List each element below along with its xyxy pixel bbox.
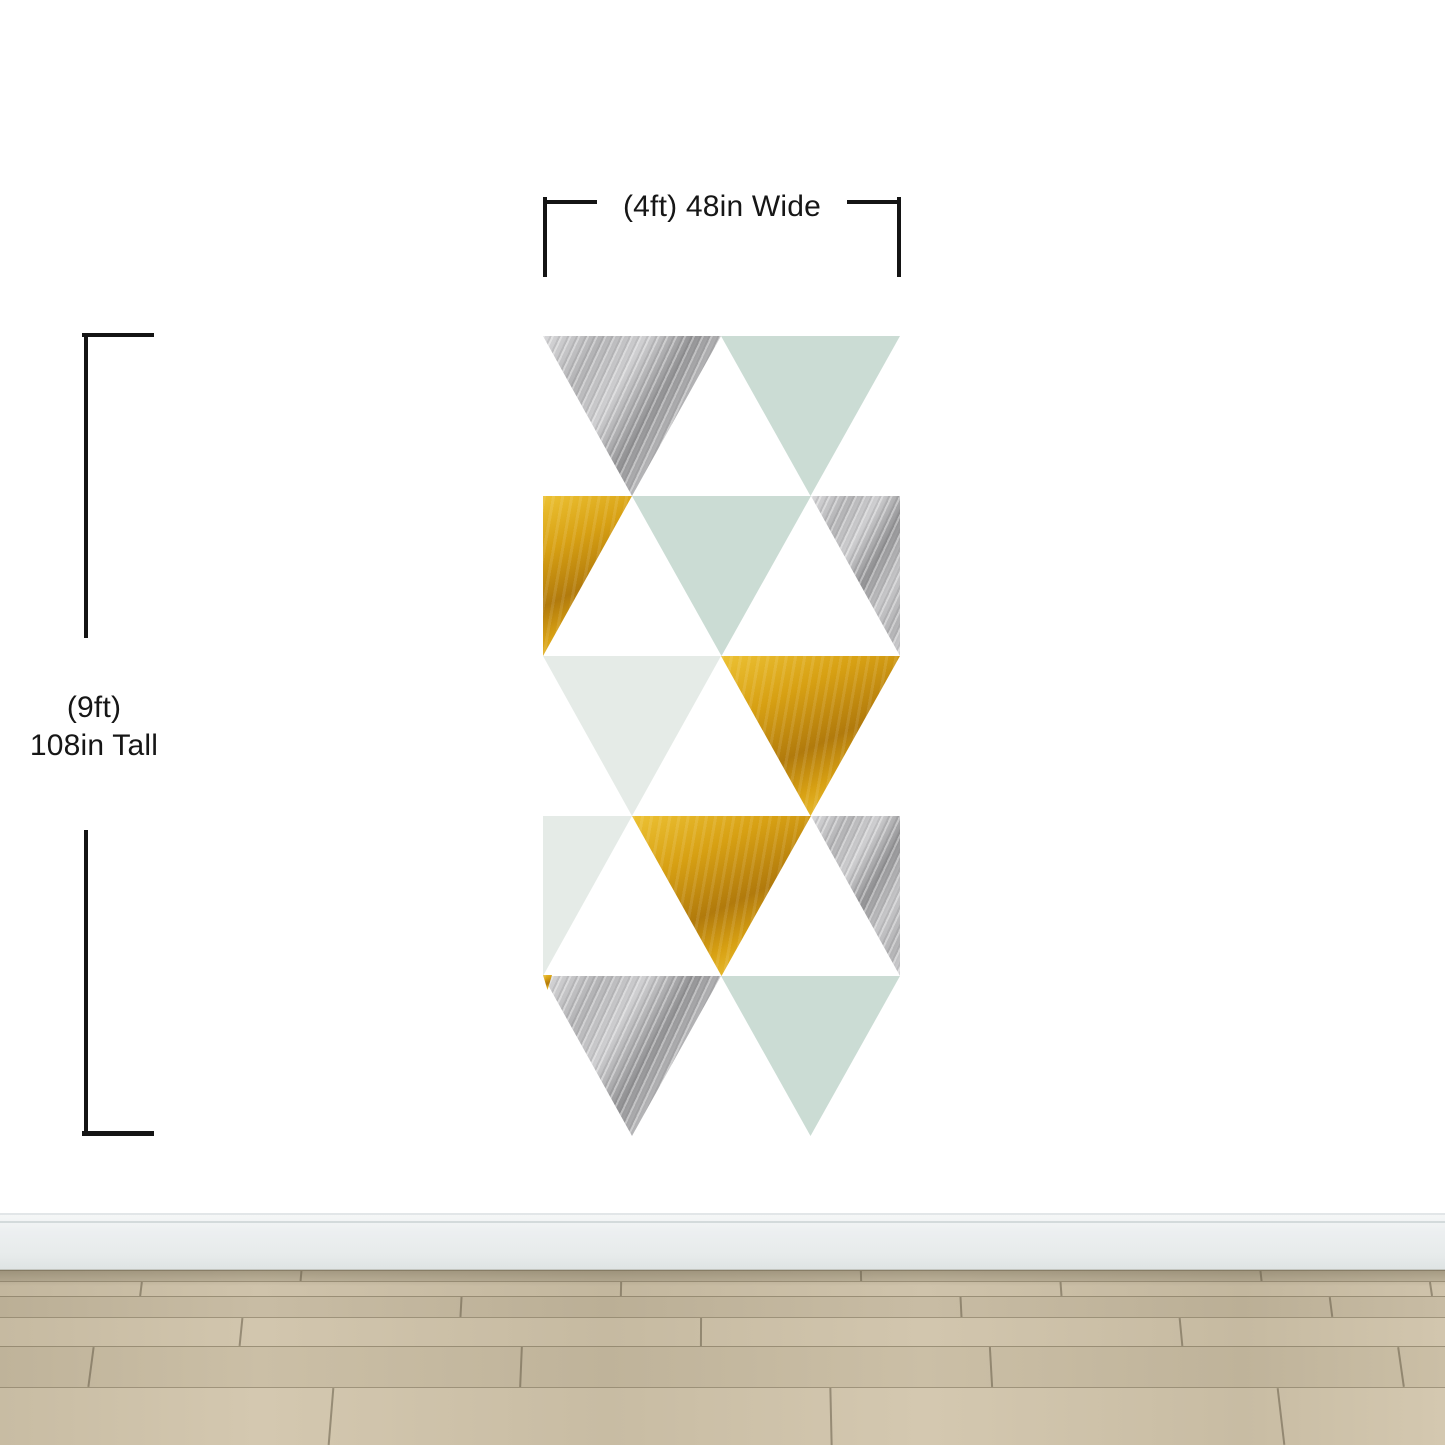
mural-triangle-gold — [632, 816, 811, 976]
height-bracket-lower-line — [84, 830, 88, 1135]
height-bracket-bottom-tick — [82, 1131, 154, 1136]
plank-joint — [1329, 1297, 1334, 1317]
mural-triangle-gold — [721, 656, 900, 816]
width-dimension-label: (4ft) 48in Wide — [543, 188, 901, 226]
triangle-wall-mural — [543, 336, 900, 1136]
height-bracket-upper-line — [84, 334, 88, 638]
floor-plank-row — [0, 1317, 1445, 1346]
floor-plank-row — [0, 1281, 1445, 1296]
baseboard — [0, 1213, 1445, 1272]
plank-joint — [989, 1347, 993, 1387]
mural-triangle-mint — [632, 496, 811, 656]
plank-joint — [700, 1318, 702, 1346]
room-scene: (4ft) 48in Wide (9ft) 108in Tall — [0, 0, 1445, 1445]
mural-triangle-silver — [811, 496, 900, 656]
plank-joint — [1277, 1388, 1286, 1445]
floor-plank-row — [0, 1270, 1445, 1281]
plank-joint — [1259, 1271, 1262, 1281]
height-label-inches: 108in Tall — [0, 727, 219, 765]
plank-joint — [239, 1318, 244, 1346]
height-bracket-top-tick — [82, 333, 154, 337]
mural-triangle-mint_pale — [543, 656, 721, 816]
floor-plank-row — [0, 1296, 1445, 1317]
mural-triangle-mint_pale — [543, 816, 632, 976]
floor-plank-row — [0, 1346, 1445, 1387]
height-label-feet: (9ft) — [0, 689, 219, 727]
mural-triangle-gold — [543, 496, 632, 656]
plank-joint — [300, 1271, 303, 1281]
plank-joint — [829, 1388, 832, 1445]
plank-joint — [87, 1347, 94, 1387]
mural-triangle-silver — [543, 336, 721, 496]
plank-joint — [1429, 1282, 1433, 1296]
plank-joint — [1060, 1282, 1063, 1296]
plank-joint — [1397, 1347, 1405, 1387]
height-dimension-label: (9ft) 108in Tall — [0, 689, 219, 765]
plank-joint — [860, 1271, 862, 1281]
mural-triangle-silver — [811, 816, 900, 976]
plank-joint — [1179, 1318, 1184, 1346]
mural-triangle-silver — [543, 976, 721, 1136]
plank-joint — [620, 1282, 622, 1296]
mural-triangle-mint — [721, 976, 900, 1136]
plank-joint — [519, 1347, 523, 1387]
plank-joint — [328, 1388, 335, 1445]
plank-joint — [139, 1282, 143, 1296]
plank-joint — [459, 1297, 462, 1317]
floor-plank-row — [0, 1387, 1445, 1445]
plank-joint — [960, 1297, 963, 1317]
wood-floor — [0, 1270, 1445, 1445]
mural-triangle-mint — [721, 336, 900, 496]
